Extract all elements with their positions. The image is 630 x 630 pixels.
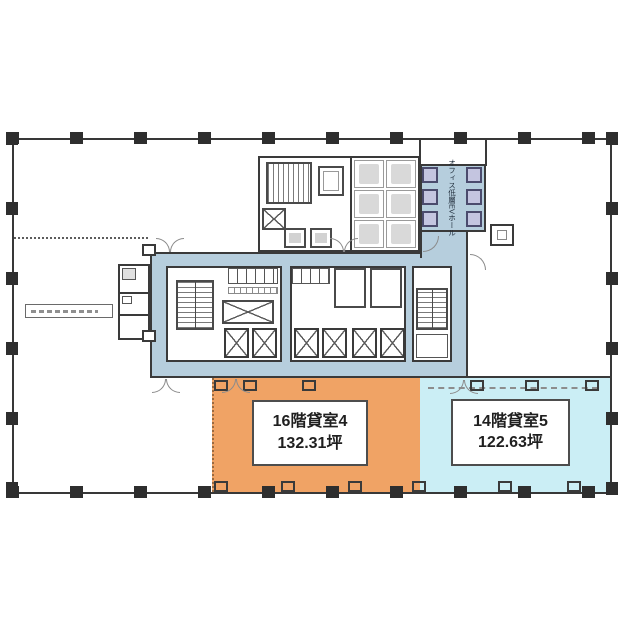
column-notch xyxy=(214,481,228,492)
unit-name: 16階貸室4 xyxy=(273,413,348,431)
utility-room-east xyxy=(490,224,514,246)
elevator-car xyxy=(386,190,416,218)
unit-14f-room5-label: 14階貸室5 122.63坪 xyxy=(451,399,570,466)
column-notch xyxy=(585,380,599,391)
unit-name: 14階貸室5 xyxy=(473,413,548,431)
wall-segment xyxy=(485,140,487,166)
duct-shaft xyxy=(222,300,274,324)
ev-hall-label: オフィス低層EVホール xyxy=(440,166,464,230)
column-notch xyxy=(412,481,426,492)
unit-16f-room4-label: 16階貸室4 132.31坪 xyxy=(252,400,368,466)
elevator-shaft xyxy=(380,328,405,358)
perimeter-columns-bottom xyxy=(6,486,622,498)
toilet-stalls-west xyxy=(228,268,278,284)
column-notch xyxy=(142,244,156,256)
perimeter-columns-top xyxy=(6,132,622,144)
equipment-box xyxy=(122,268,136,280)
tenant-boundary-dotted-line xyxy=(14,237,148,239)
stairwell-west xyxy=(176,280,214,330)
ev-shaft xyxy=(422,189,438,205)
unit-area: 132.31坪 xyxy=(278,435,343,453)
column-notch xyxy=(498,481,512,492)
elevator-bank-north xyxy=(350,156,420,252)
wall-segment xyxy=(118,314,150,316)
equipment-box xyxy=(122,296,132,304)
elevator-car xyxy=(386,220,416,248)
floor-plan: オフィス低層EVホール 1 xyxy=(0,0,630,630)
elevator-shaft xyxy=(352,328,377,358)
column-notch xyxy=(302,380,316,391)
ev-shaft xyxy=(466,167,482,183)
utility-room-north xyxy=(318,166,344,196)
stairwell-east xyxy=(416,288,448,330)
machine-room-a xyxy=(334,268,366,308)
column-notch xyxy=(142,330,156,342)
column-notch xyxy=(567,481,581,492)
elevator-shaft xyxy=(294,328,319,358)
elevator-car xyxy=(354,160,384,188)
toilet-stalls-center xyxy=(292,268,330,284)
corridor-south-wall xyxy=(150,376,612,378)
elevator-car xyxy=(354,190,384,218)
elevator-shaft xyxy=(224,328,249,358)
ev-shaft xyxy=(422,167,438,183)
ev-shaft xyxy=(466,189,482,205)
perimeter-columns-left xyxy=(6,132,18,498)
elevator-shaft xyxy=(322,328,347,358)
wall-segment xyxy=(419,140,421,166)
shaft-north xyxy=(262,208,286,230)
column-notch xyxy=(525,380,539,391)
storage-room-east xyxy=(416,334,448,358)
stairwell-north xyxy=(266,162,312,204)
column-notch xyxy=(348,481,362,492)
ev-shaft xyxy=(422,211,438,227)
column-notch xyxy=(281,481,295,492)
unit-area: 122.63坪 xyxy=(478,434,543,452)
elevator-car xyxy=(386,160,416,188)
machine-room-b xyxy=(370,268,402,308)
wall-segment xyxy=(118,292,150,294)
elevator-shaft xyxy=(252,328,277,358)
elevator-car xyxy=(354,220,384,248)
service-lift-a xyxy=(284,228,306,248)
perimeter-columns-right xyxy=(606,132,618,498)
ev-shaft xyxy=(466,211,482,227)
service-lift-b xyxy=(310,228,332,248)
small-note-box xyxy=(25,304,113,318)
toilet-sinks-west xyxy=(228,287,278,294)
